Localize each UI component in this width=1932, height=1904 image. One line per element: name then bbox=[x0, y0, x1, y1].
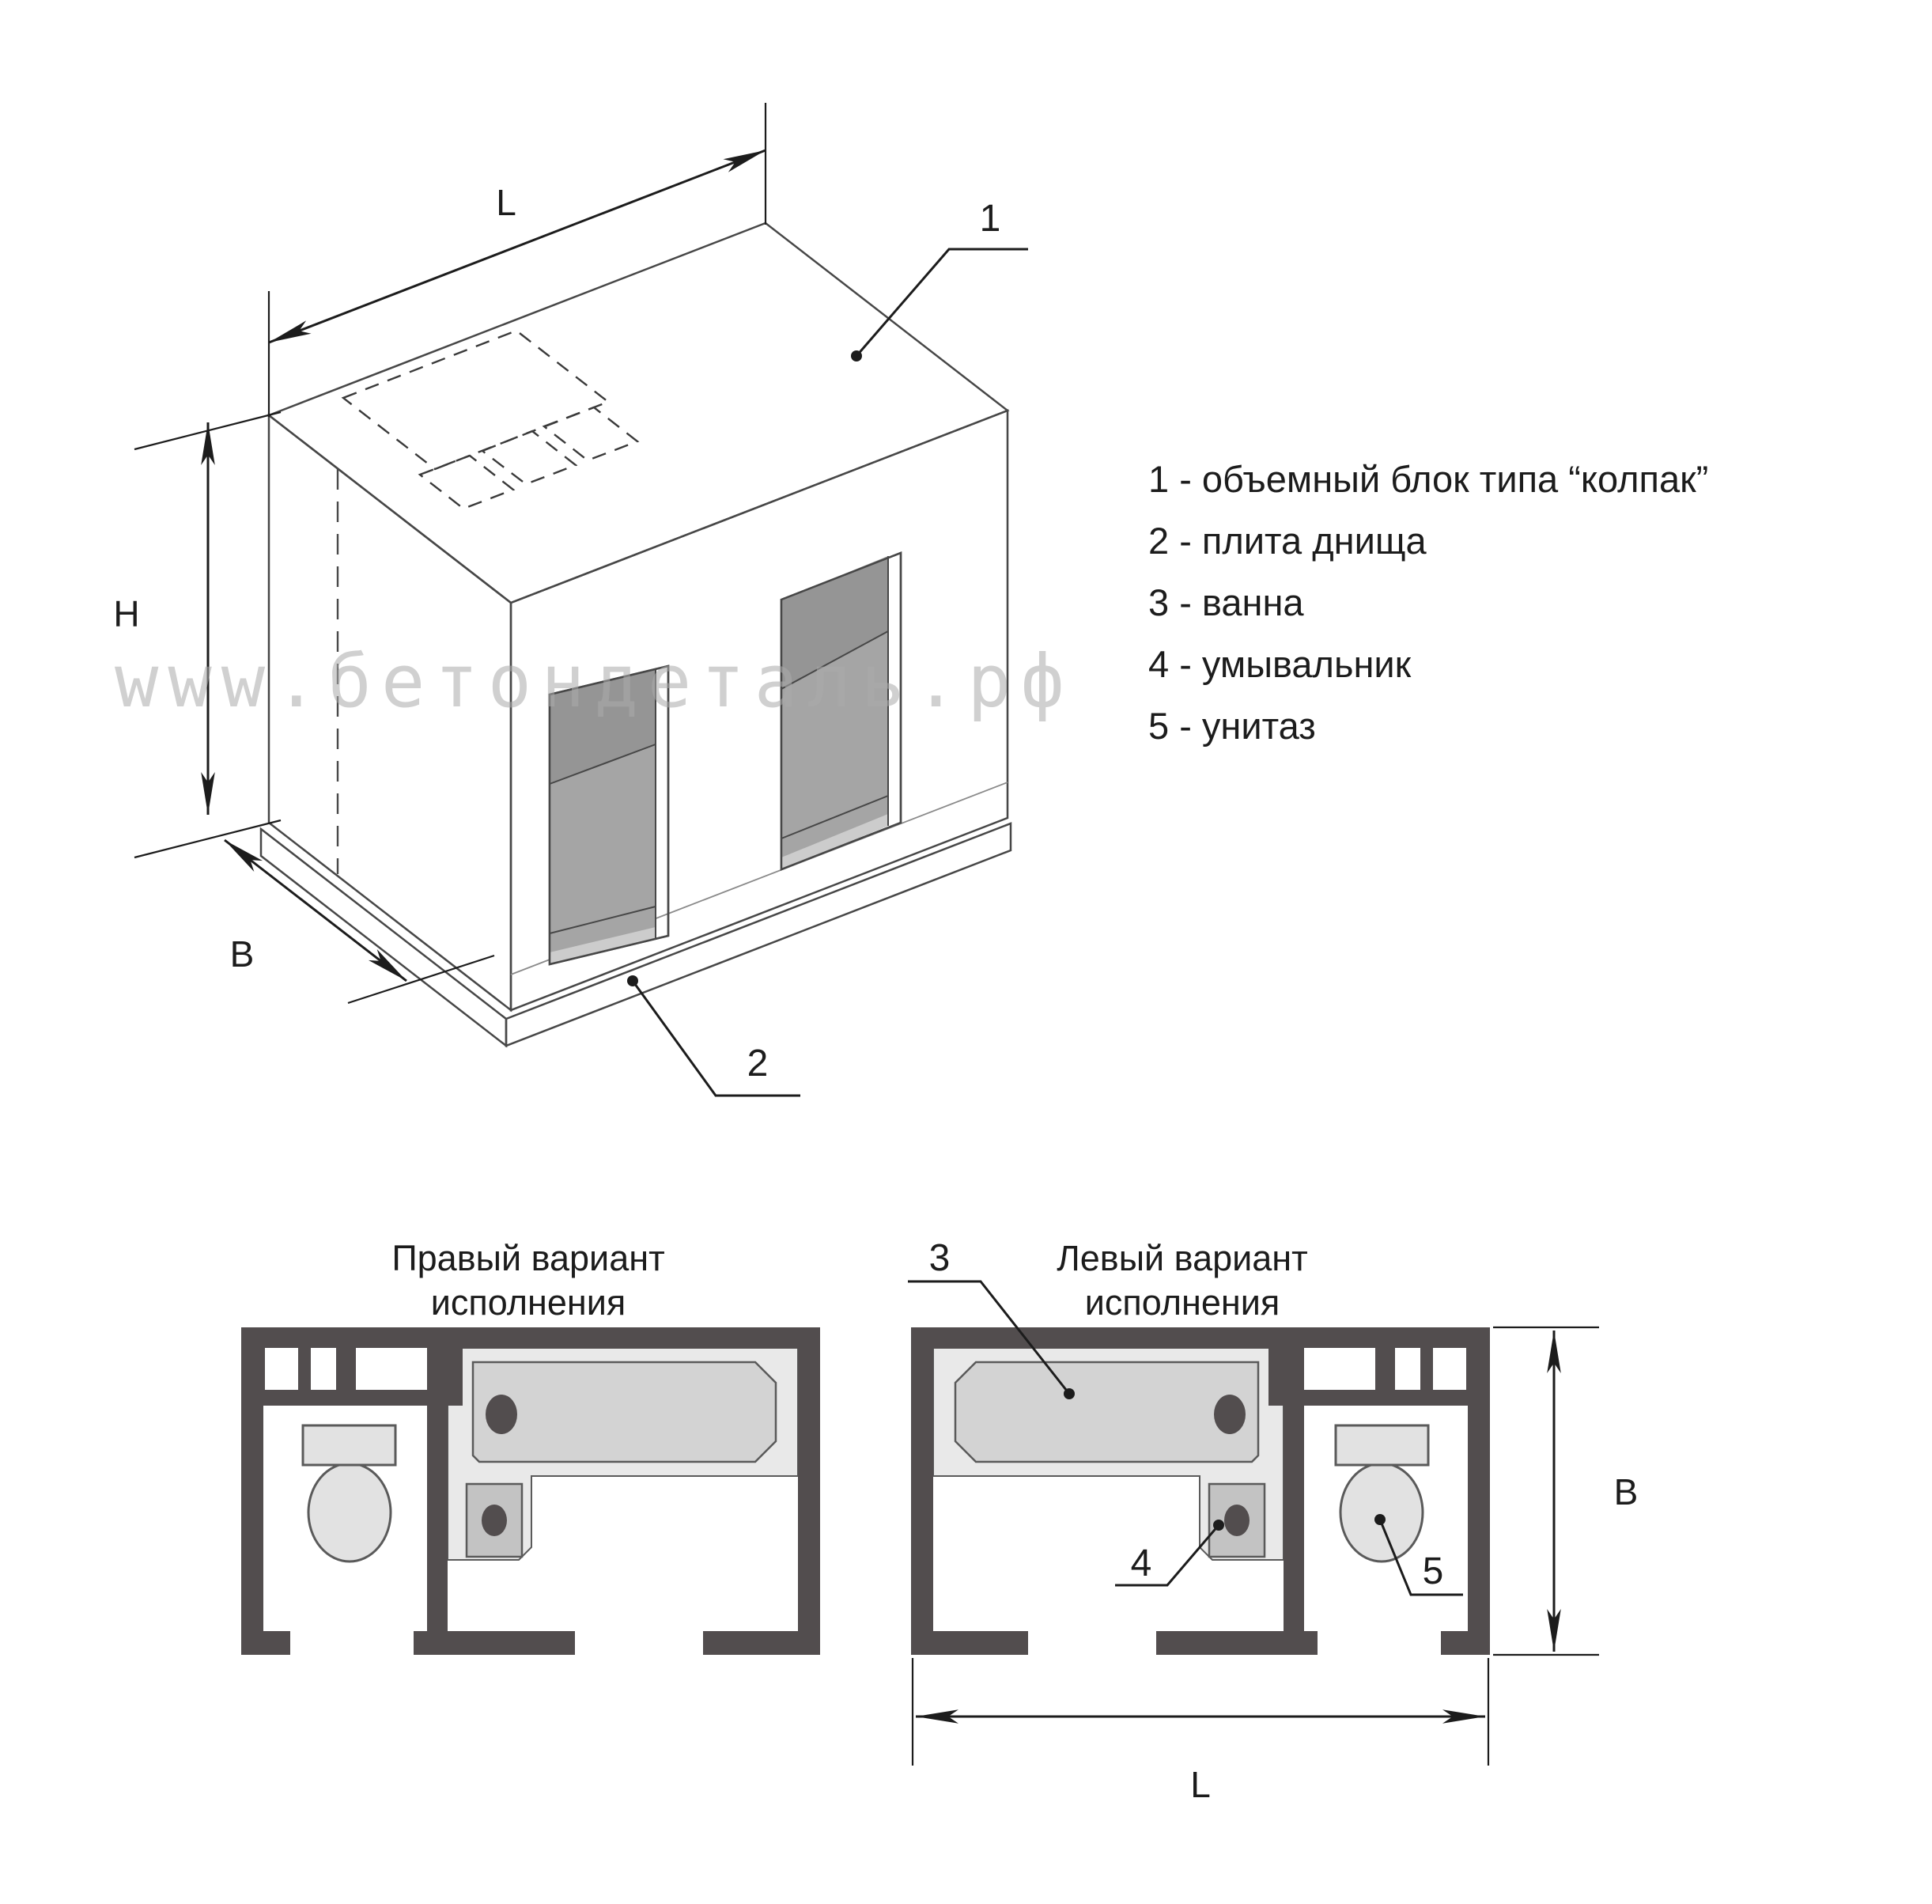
wall-middle-foot bbox=[414, 1631, 575, 1655]
legend-item-5: 5 - унитаз bbox=[1148, 705, 1316, 747]
dim-B-plan-label: B bbox=[1614, 1471, 1639, 1512]
top-face bbox=[269, 223, 1008, 603]
dimension-length-iso: L bbox=[269, 103, 766, 417]
dimension-height-iso: H bbox=[113, 412, 281, 857]
vent-slot-1 bbox=[265, 1348, 298, 1390]
legend: 1 - объемный блок типа “колпак” 2 - плит… bbox=[1148, 458, 1708, 747]
bathtub bbox=[955, 1362, 1258, 1462]
dim-L-label: L bbox=[496, 182, 516, 223]
wall-left-foot bbox=[911, 1631, 1028, 1655]
callout-2-number: 2 bbox=[747, 1043, 769, 1084]
plan-left-variant: Левый вариант исполнения bbox=[908, 1237, 1638, 1805]
wall-left-foot bbox=[241, 1631, 290, 1655]
watermark-text: www.бетондеталь.рф bbox=[115, 639, 1074, 724]
vent-slot-3 bbox=[356, 1348, 427, 1390]
dimension-length-plan: L bbox=[913, 1658, 1488, 1805]
legend-item-2: 2 - плита днища bbox=[1148, 520, 1427, 562]
dim-B-label: B bbox=[230, 933, 255, 975]
toilet-tank bbox=[303, 1425, 395, 1465]
callout-3-number: 3 bbox=[929, 1237, 951, 1279]
wall-right bbox=[1468, 1327, 1490, 1631]
dimension-width-plan: B bbox=[1493, 1327, 1638, 1655]
plan-left-title-line1: Левый вариант bbox=[1057, 1238, 1308, 1278]
sink-drain-dot bbox=[482, 1505, 507, 1536]
wall-right-foot bbox=[1441, 1631, 1490, 1655]
toilet-bowl bbox=[308, 1463, 391, 1561]
wall-left bbox=[911, 1327, 933, 1631]
bathtub bbox=[473, 1362, 776, 1462]
callout-5-number: 5 bbox=[1423, 1550, 1444, 1592]
wall-middle bbox=[427, 1348, 448, 1631]
plan-right-title-line1: Правый вариант bbox=[391, 1238, 664, 1278]
isometric-view: L H B 1 2 bbox=[113, 103, 1028, 1096]
wall-right-foot bbox=[703, 1631, 820, 1655]
wall-top bbox=[911, 1327, 1490, 1349]
plan-right-title-line2: исполнения bbox=[431, 1282, 626, 1323]
wall-right bbox=[798, 1327, 820, 1631]
sink-drain-dot bbox=[1224, 1505, 1250, 1536]
wall-middle bbox=[1284, 1348, 1304, 1631]
vent-slot-1 bbox=[1433, 1348, 1466, 1390]
dim-H-ext-bottom bbox=[134, 820, 281, 857]
bathtub-drain-dot bbox=[1214, 1395, 1246, 1434]
legend-item-1: 1 - объемный блок типа “колпак” bbox=[1148, 458, 1708, 500]
bathtub-drain-dot bbox=[486, 1395, 517, 1434]
wall-top bbox=[241, 1327, 820, 1349]
hatch-outline-dashed bbox=[343, 331, 608, 469]
callout-1: 1 bbox=[851, 198, 1028, 361]
dim-L-line bbox=[269, 150, 766, 343]
wall-middle-foot bbox=[1156, 1631, 1318, 1655]
toilet-bowl bbox=[1340, 1463, 1423, 1561]
plan-left-title-line2: исполнения bbox=[1085, 1282, 1280, 1323]
callout-2-leader bbox=[633, 981, 800, 1096]
toilet-tank bbox=[1336, 1425, 1428, 1465]
technical-diagram-page: L H B 1 2 1 - объемный блок ти bbox=[0, 0, 1932, 1904]
vent-slot-3 bbox=[1304, 1348, 1375, 1390]
callout-4-number: 4 bbox=[1131, 1543, 1152, 1584]
vent-slot-2 bbox=[311, 1348, 336, 1390]
vent-slot-2 bbox=[1395, 1348, 1420, 1390]
legend-item-3: 3 - ванна bbox=[1148, 581, 1304, 623]
sanitary-cabin-diagram: L H B 1 2 1 - объемный блок ти bbox=[0, 0, 1932, 1904]
plan-right-variant: Правый вариант исполнения bbox=[241, 1238, 820, 1655]
callout-1-leader bbox=[856, 249, 1028, 356]
dim-H-label: H bbox=[113, 593, 139, 634]
wall-left bbox=[241, 1327, 263, 1631]
callout-2: 2 bbox=[627, 975, 800, 1096]
legend-item-4: 4 - умывальник bbox=[1148, 643, 1412, 685]
callout-1-number: 1 bbox=[980, 198, 1001, 240]
hatch-slot-3-dashed bbox=[544, 407, 637, 460]
roof-hatch-dashed bbox=[343, 331, 637, 509]
base-plate-left-strip bbox=[261, 829, 506, 1046]
dim-L-plan-label: L bbox=[1190, 1764, 1211, 1805]
